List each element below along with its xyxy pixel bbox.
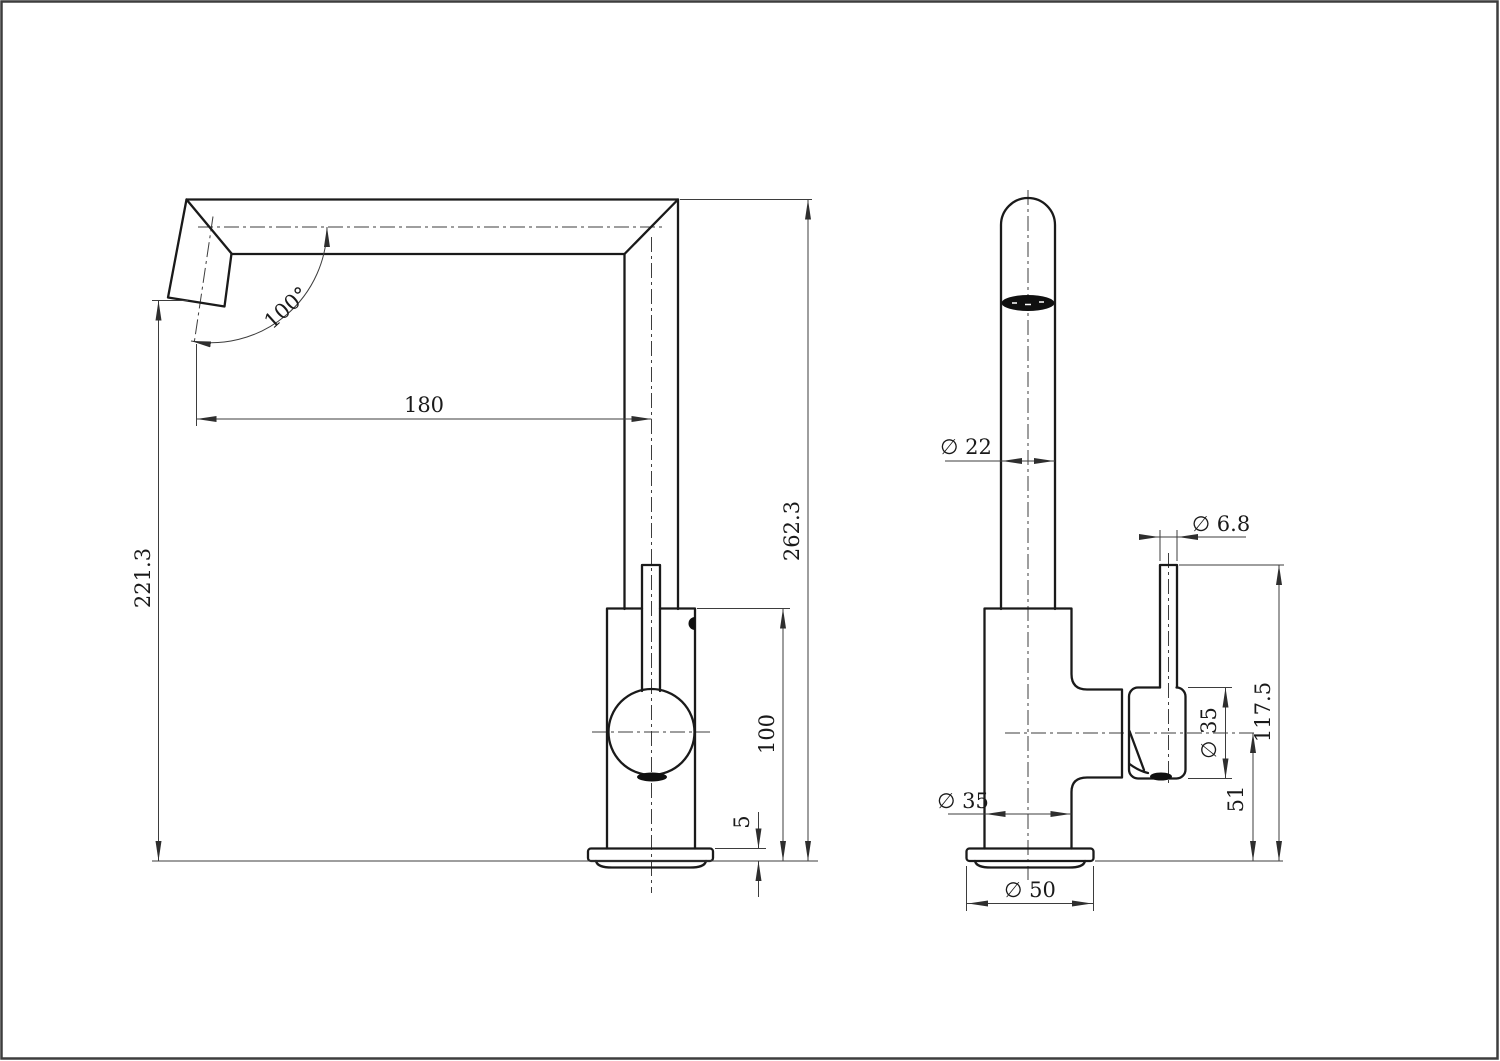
faucet-technical-drawing: 221.3 180 100° 262.3 100: [0, 0, 1500, 1061]
dim-label-262-3: 262.3: [780, 501, 804, 561]
body-set-screw: [689, 617, 696, 630]
handle-ball-slot: [637, 773, 667, 782]
handle-housing-slot: [1150, 773, 1172, 781]
base-flange-front: [967, 849, 1094, 862]
dim-label-51: 51: [1224, 786, 1248, 813]
dim-spout-tube-diameter: ∅ 22: [940, 435, 1055, 461]
dim-body-diameter: ∅ 35: [937, 789, 1071, 814]
dim-label-d22: ∅ 22: [940, 435, 992, 459]
spout-tip-axis-centerline: [194, 217, 213, 345]
side-view-dimensions: 221.3 180 100° 262.3 100: [131, 200, 818, 898]
spout-tip: [168, 200, 232, 307]
body-front: [985, 609, 1123, 849]
dim-lever-rod-diameter: ∅ 6.8: [1142, 512, 1250, 561]
dim-base-thickness: 5: [715, 812, 766, 897]
sheet-border: [2, 2, 1498, 1059]
drawing-sheet: 221.3 180 100° 262.3 100: [0, 0, 1500, 1061]
dim-cartridge-axis-height: 51: [1224, 733, 1253, 861]
front-view-outline: [967, 198, 1186, 868]
dim-spout-angle: 100°: [191, 227, 327, 343]
dim-overall-height: 262.3: [680, 200, 812, 862]
dim-spout-reach: 180: [197, 344, 652, 426]
side-view-outline: [168, 200, 713, 868]
dim-label-d50: ∅ 50: [1004, 878, 1056, 902]
dim-label-5: 5: [730, 815, 754, 828]
dim-label-d6-8: ∅ 6.8: [1192, 512, 1250, 536]
dim-label-221-3: 221.3: [131, 548, 155, 608]
dim-label-d35-body: ∅ 35: [937, 789, 989, 813]
dim-lever-top-height: 117.5: [1179, 565, 1284, 861]
dim-label-100: 100: [755, 714, 779, 754]
side-view: 221.3 180 100° 262.3 100: [131, 200, 818, 898]
base-flange-side: [588, 849, 713, 862]
handle-housing-joint: [1130, 731, 1149, 773]
dim-label-180: 180: [404, 393, 444, 417]
dim-label-100deg: 100°: [259, 282, 313, 334]
dim-base-diameter: ∅ 50: [967, 866, 1094, 911]
front-view-dimensions: ∅ 22 ∅ 6.8 117.5 ∅ 35 51: [937, 435, 1284, 911]
aerator-outlet: [1002, 295, 1055, 311]
dim-label-d35-handle: ∅ 35: [1197, 707, 1221, 759]
dim-spout-outlet-height: 221.3: [131, 301, 188, 862]
front-view: ∅ 22 ∅ 6.8 117.5 ∅ 35 51: [937, 190, 1284, 911]
dim-label-117-5: 117.5: [1251, 682, 1275, 742]
